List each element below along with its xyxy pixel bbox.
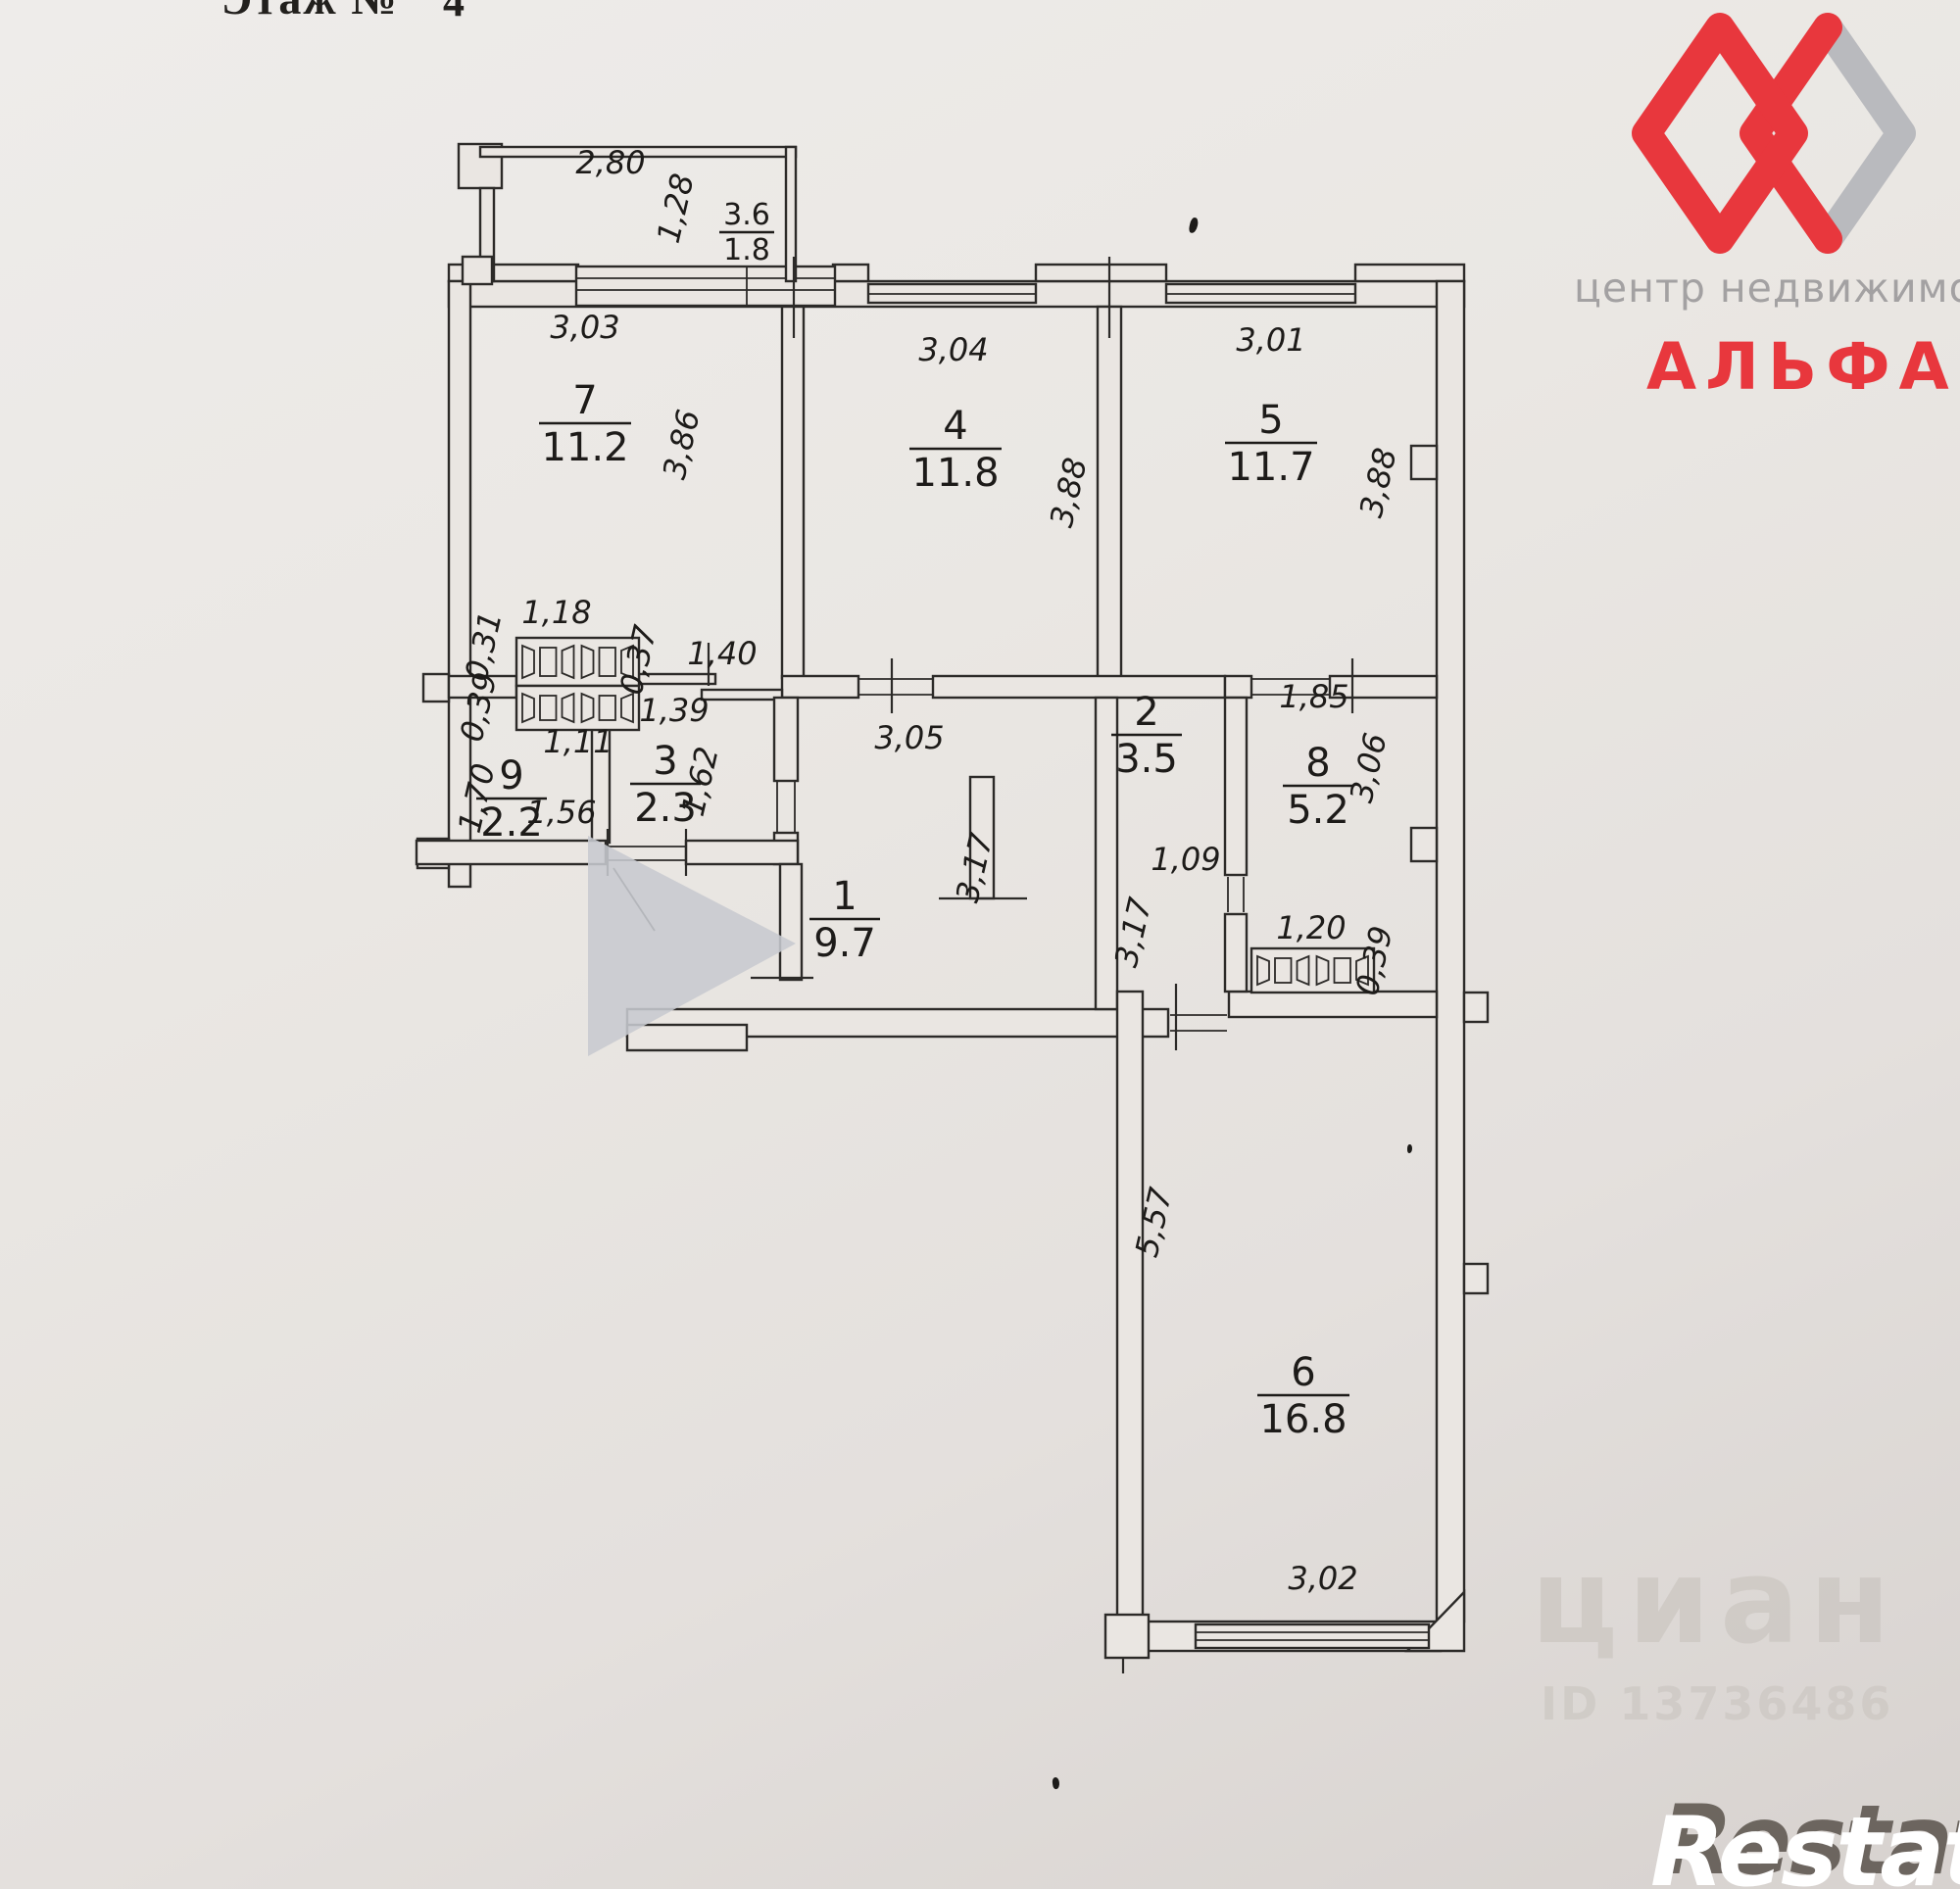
dimension-label: 3,02 <box>1288 1560 1357 1597</box>
dimension-label: 1,11 <box>543 723 612 760</box>
room-label-1: 19.7 <box>809 874 880 966</box>
wall <box>780 864 802 980</box>
wall <box>1225 914 1247 992</box>
wall <box>1098 307 1121 678</box>
wall <box>1036 265 1166 281</box>
svg-text:3.6: 3.6 <box>723 198 770 232</box>
wall <box>1355 265 1464 281</box>
dimension-label: 1,56 <box>526 794 596 831</box>
svg-text:16.8: 16.8 <box>1259 1397 1347 1442</box>
room-label-2: 23.5 <box>1111 690 1182 782</box>
svg-text:11.2: 11.2 <box>541 425 628 470</box>
dimension-label: 1,39 <box>639 692 709 729</box>
svg-text:7: 7 <box>572 378 597 423</box>
dimension-label: 3,03 <box>550 309 619 346</box>
wall <box>782 676 858 698</box>
room-label-5: 511.7 <box>1225 398 1317 490</box>
svg-text:11.8: 11.8 <box>911 451 999 496</box>
wall-corner <box>1105 1615 1149 1658</box>
window <box>1166 284 1355 303</box>
wall-thin <box>702 690 782 700</box>
wall <box>782 307 804 678</box>
svg-text:3.5: 3.5 <box>1115 737 1178 782</box>
svg-text:4: 4 <box>943 404 967 449</box>
dimension-label: 1,85 <box>1279 678 1348 715</box>
wall <box>627 1025 747 1050</box>
dimension-label: 3,01 <box>1236 321 1305 359</box>
wall-pilaster <box>1411 828 1437 861</box>
wall <box>833 265 868 281</box>
portal-watermark: циан <box>1531 1534 1900 1671</box>
dimension-label: 1,62 <box>674 744 726 820</box>
room-label-4: 411.8 <box>909 404 1002 496</box>
restate-text: Restate <box>1650 1797 1960 1889</box>
alfa-logo-icon <box>1607 6 1960 263</box>
room-label-8: 85.2 <box>1283 741 1353 833</box>
wall-pilaster <box>1464 1264 1488 1293</box>
svg-text:1: 1 <box>832 874 857 919</box>
room-label-6: 616.8 <box>1257 1350 1349 1442</box>
wall <box>933 676 1225 698</box>
svg-text:9: 9 <box>499 753 523 799</box>
wall <box>1229 992 1437 1017</box>
dimension-label: 3,86 <box>656 407 708 483</box>
wall-pilaster <box>1411 446 1437 479</box>
svg-text:1.8: 1.8 <box>723 233 770 267</box>
svg-text:5.2: 5.2 <box>1287 788 1349 833</box>
agency-subtitle: центр недвижимости <box>1574 265 1960 312</box>
dimension-label: 1,20 <box>1276 909 1346 946</box>
floorplan-page: Этаж № 4 <box>0 0 1960 1889</box>
wall-pilaster <box>1464 993 1488 1022</box>
dimension-label: 3,04 <box>918 331 988 368</box>
wall <box>1437 281 1464 1622</box>
dimension-label: 3,05 <box>874 719 944 756</box>
window <box>1196 1624 1429 1648</box>
wall <box>1225 676 1251 698</box>
svg-text:5: 5 <box>1258 398 1283 443</box>
room-label-3.6: 3.61.8 <box>719 198 774 267</box>
restate-watermark: Restate Restate <box>1650 1797 1960 1889</box>
wall <box>1117 992 1143 1622</box>
svg-text:6: 6 <box>1291 1350 1315 1395</box>
dimension-label: 3,06 <box>1343 730 1395 806</box>
dimension-label: 1,28 <box>650 170 702 247</box>
wall <box>1225 698 1247 875</box>
wall-pilaster <box>423 674 449 702</box>
svg-text:8: 8 <box>1305 741 1330 786</box>
dimension-label: 1,18 <box>521 594 591 631</box>
dimension-label: 0,37 <box>612 621 664 699</box>
svg-text:3: 3 <box>653 739 677 784</box>
dimension-label: 3,88 <box>1352 445 1404 521</box>
wall <box>686 841 798 864</box>
svg-text:9.7: 9.7 <box>813 921 876 966</box>
dimension-label: 2,80 <box>575 144 645 181</box>
room-label-7: 711.2 <box>539 378 631 470</box>
dimension-label: 1,09 <box>1151 841 1220 878</box>
portal-id-watermark: ID 13736486 <box>1541 1677 1893 1730</box>
wall <box>774 698 798 781</box>
dimension-label: 1,40 <box>687 635 757 672</box>
window <box>868 284 1036 303</box>
agency-name: АЛЬФА <box>1646 329 1958 405</box>
svg-text:11.7: 11.7 <box>1227 445 1314 490</box>
dimension-label: 0,39 <box>1348 923 1400 999</box>
dimension-label: 3,88 <box>1043 455 1095 531</box>
svg-text:2: 2 <box>1134 690 1158 735</box>
balcony-wall <box>463 257 492 284</box>
